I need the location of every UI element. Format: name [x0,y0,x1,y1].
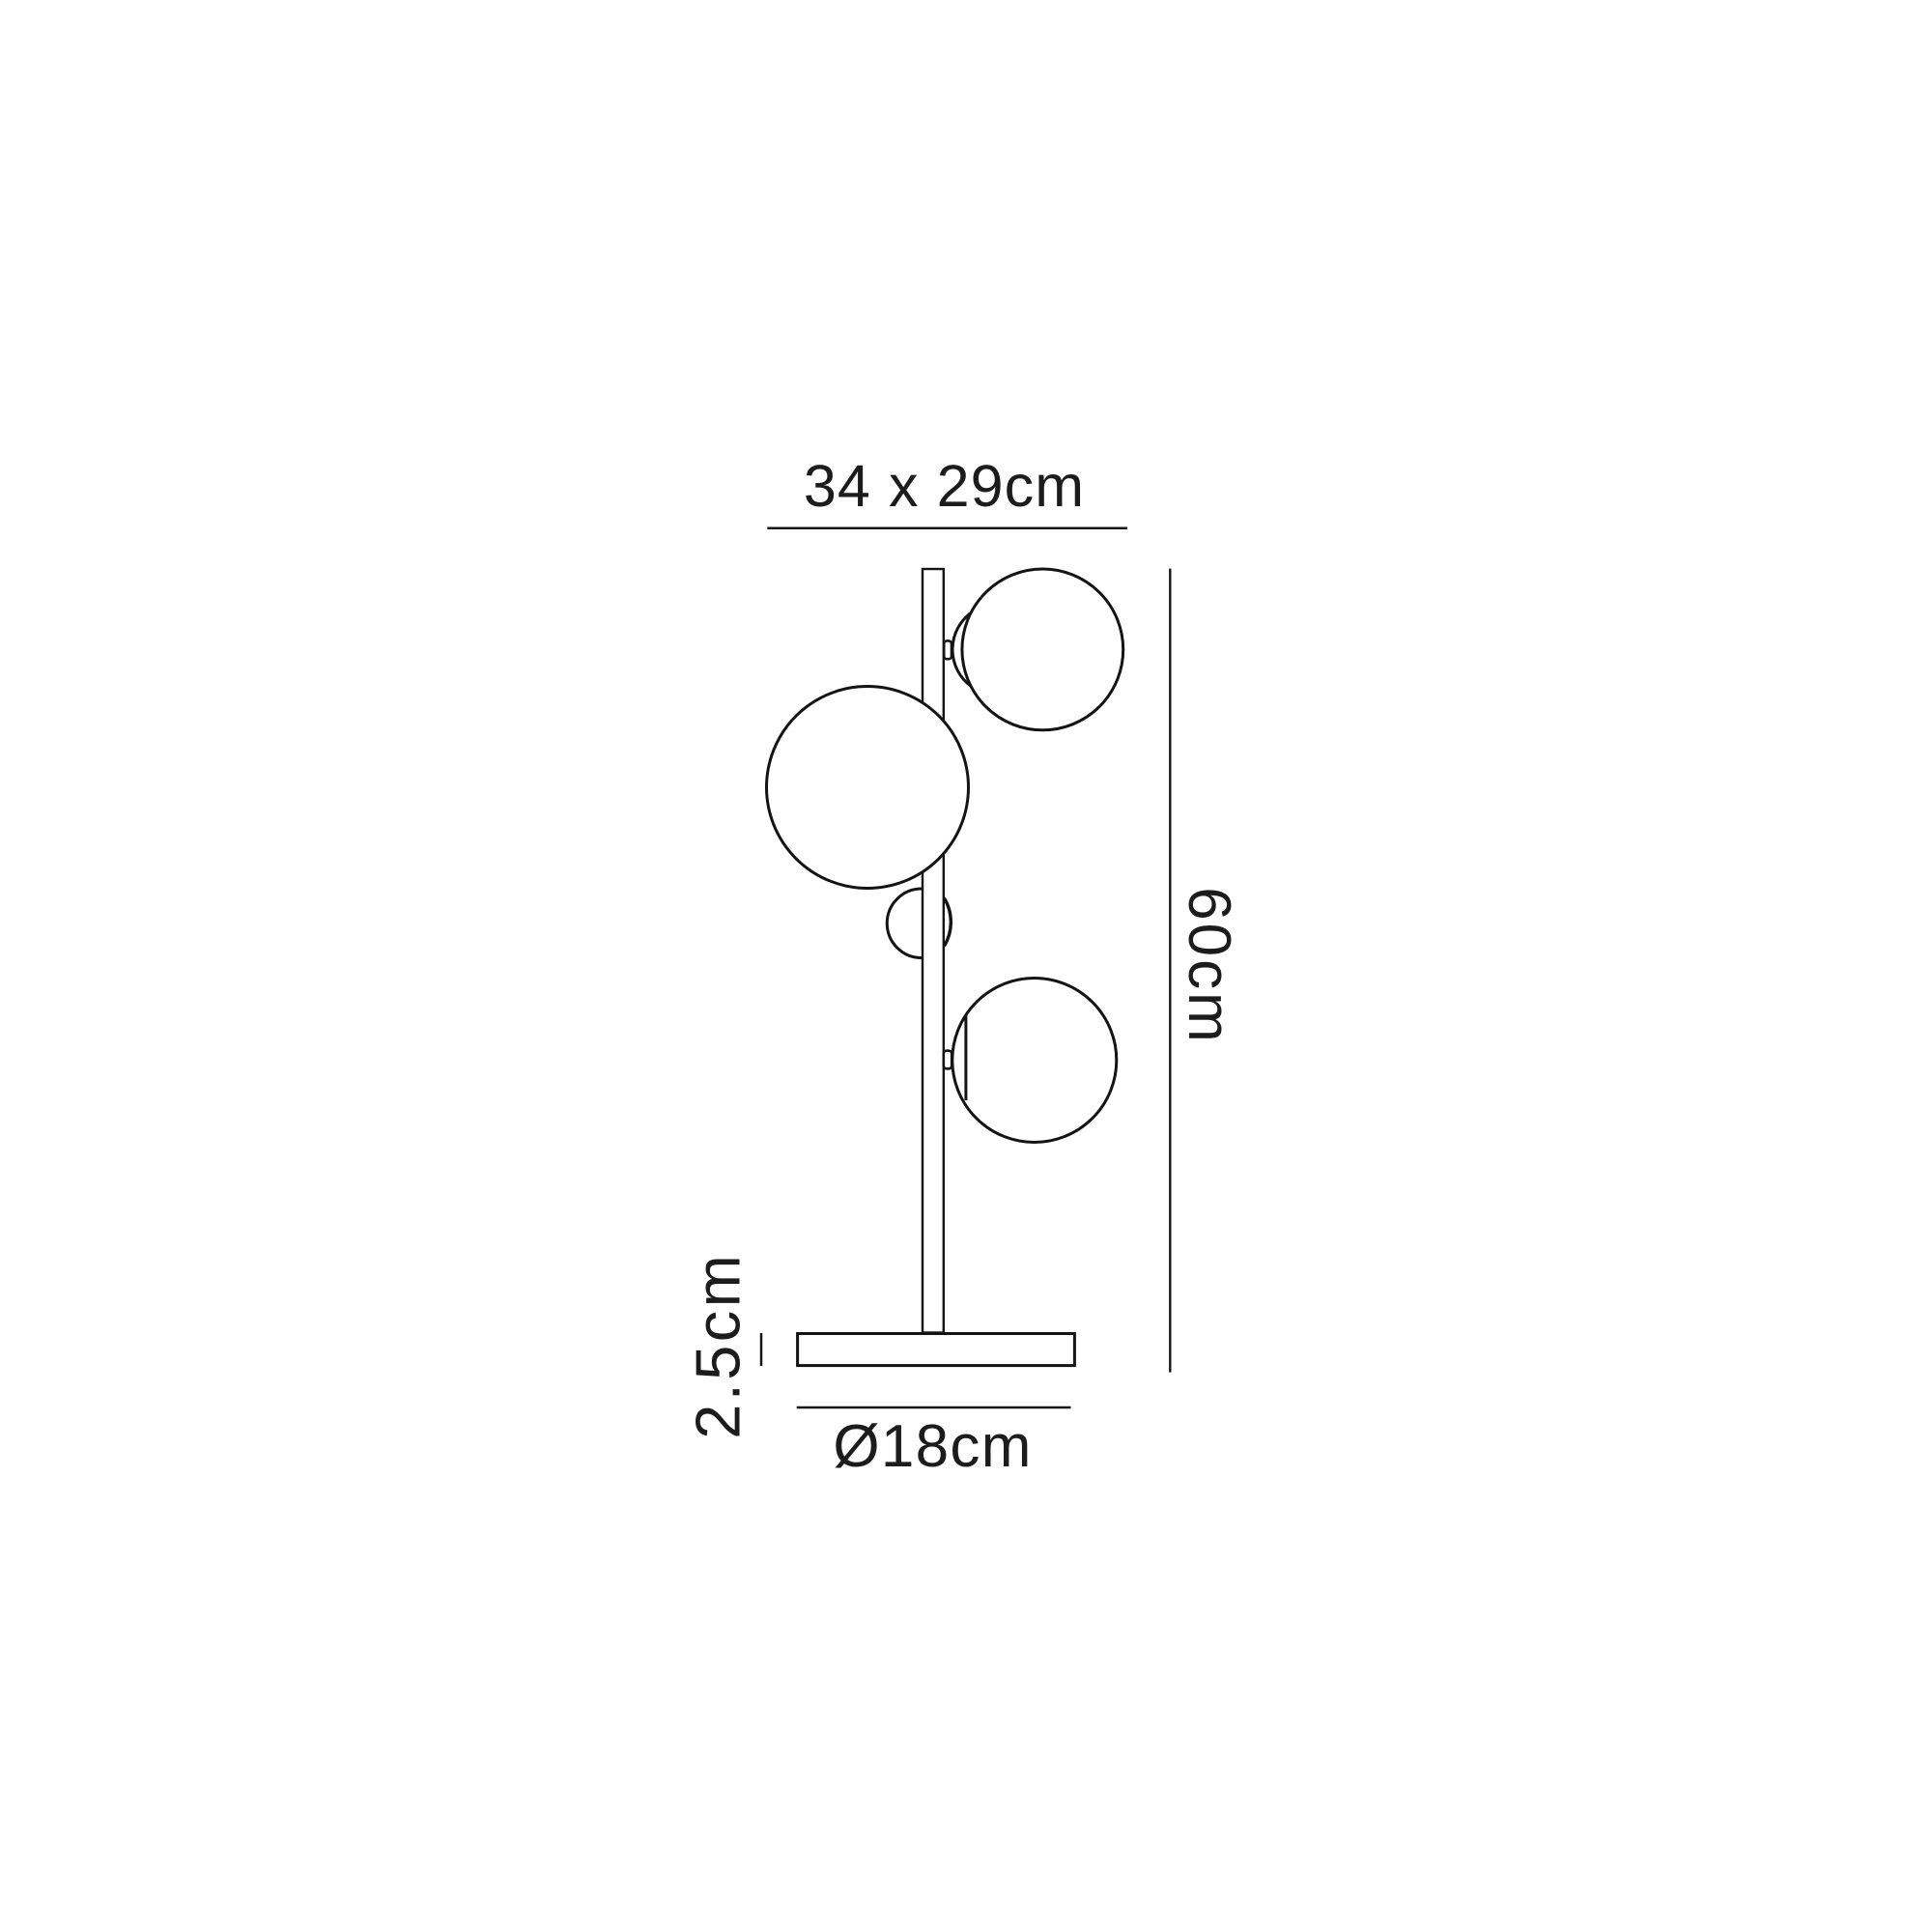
svg-text:60cm: 60cm [1176,887,1242,1045]
svg-text:Ø18cm: Ø18cm [833,1413,1032,1480]
svg-text:2.5cm: 2.5cm [683,1252,753,1439]
svg-text:34 x 29cm: 34 x 29cm [804,453,1085,519]
